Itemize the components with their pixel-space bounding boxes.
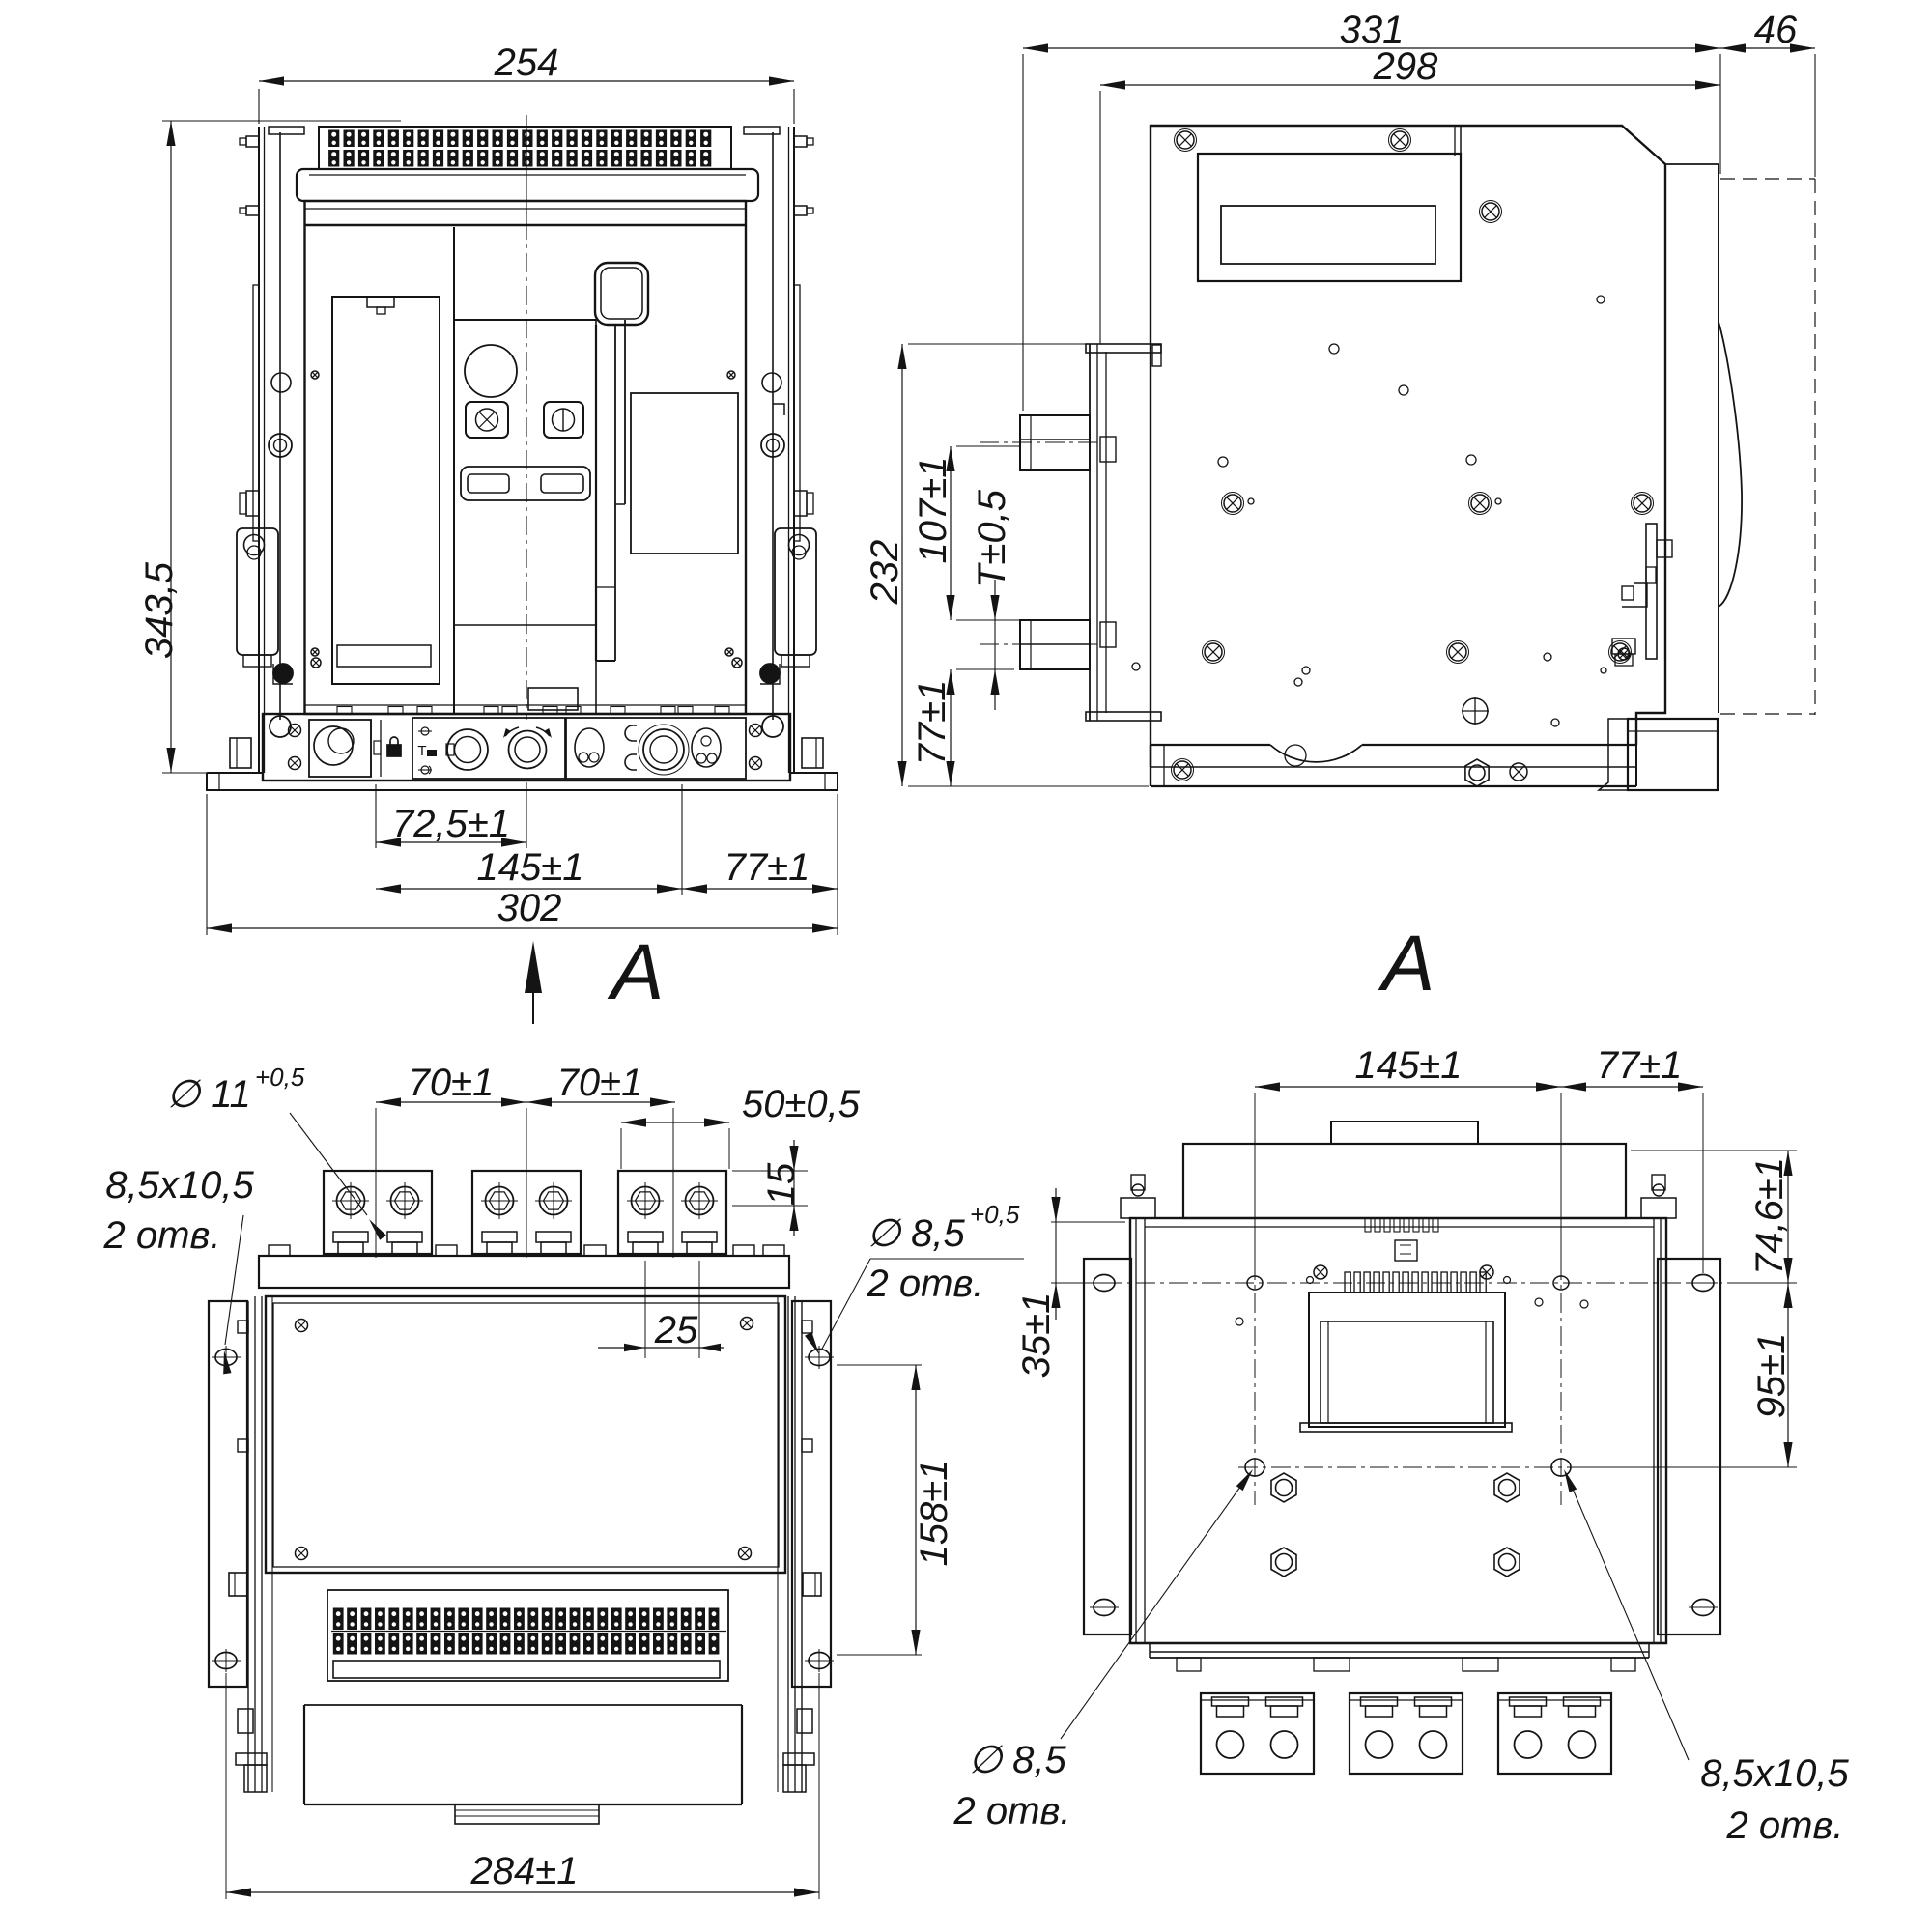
svg-text:77±1: 77±1 <box>724 846 810 889</box>
svg-text:284±1: 284±1 <box>470 1850 579 1892</box>
svg-text:+0,5: +0,5 <box>970 1200 1020 1229</box>
svg-text:145±1: 145±1 <box>1355 1044 1463 1087</box>
svg-text:77±1: 77±1 <box>1597 1044 1683 1087</box>
svg-text:77±1: 77±1 <box>911 680 953 766</box>
svg-text:2 отв.: 2 отв. <box>1726 1804 1844 1847</box>
svg-text:8,5x10,5: 8,5x10,5 <box>1700 1752 1849 1795</box>
svg-text:107±1: 107±1 <box>912 457 954 564</box>
svg-text:343,5: 343,5 <box>138 561 181 659</box>
svg-text:15: 15 <box>760 1162 803 1206</box>
svg-text:T: T <box>417 743 426 759</box>
svg-text:2 отв.: 2 отв. <box>103 1214 221 1257</box>
svg-text:+0,5: +0,5 <box>255 1063 305 1092</box>
svg-text:8,5x10,5: 8,5x10,5 <box>105 1164 254 1207</box>
svg-text:95±1: 95±1 <box>1750 1333 1793 1419</box>
svg-text:298: 298 <box>1373 45 1438 88</box>
svg-text:T±0,5: T±0,5 <box>971 489 1013 588</box>
svg-text:∅ 8,5: ∅ 8,5 <box>867 1212 965 1255</box>
svg-text:2 отв.: 2 отв. <box>867 1263 984 1305</box>
svg-text:72,5±1: 72,5±1 <box>392 803 510 845</box>
svg-text:2 отв.: 2 отв. <box>953 1790 1071 1833</box>
svg-text:25: 25 <box>654 1309 698 1351</box>
svg-text:232: 232 <box>864 540 906 606</box>
svg-text:A: A <box>1378 920 1435 1008</box>
svg-text:70±1: 70±1 <box>409 1062 495 1104</box>
svg-text:35±1: 35±1 <box>1015 1293 1058 1378</box>
svg-text:145±1: 145±1 <box>477 846 584 889</box>
svg-text:302: 302 <box>497 887 562 929</box>
svg-text:74,6±1: 74,6±1 <box>1748 1157 1791 1275</box>
svg-text:158±1: 158±1 <box>913 1460 955 1567</box>
svg-text:∅ 11: ∅ 11 <box>166 1073 250 1116</box>
svg-text:∅ 8,5: ∅ 8,5 <box>968 1739 1066 1781</box>
svg-text:254: 254 <box>494 42 559 84</box>
svg-text:50±0,5: 50±0,5 <box>742 1083 861 1125</box>
svg-text:46: 46 <box>1754 9 1798 51</box>
svg-text:70±1: 70±1 <box>557 1062 643 1104</box>
svg-text:A: A <box>607 928 665 1016</box>
